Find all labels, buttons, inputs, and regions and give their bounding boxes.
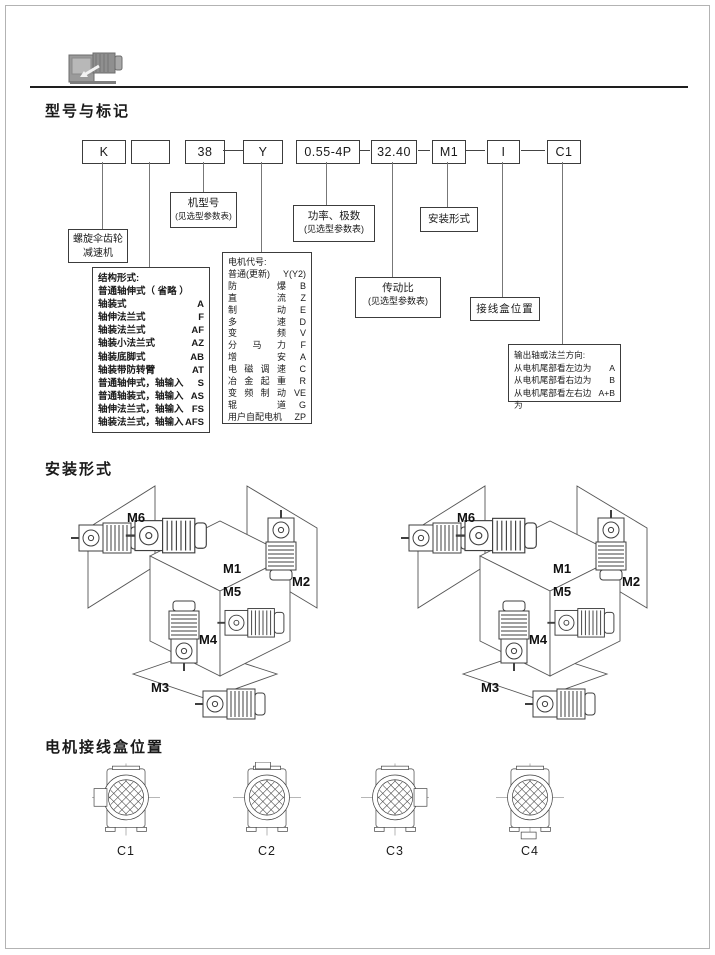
callout-ratio: 传动比 (见选型参数表) [355,277,441,318]
leader-line [392,162,393,277]
motor-code-row: 防爆B [228,281,306,293]
callout-motor-codes: 电机代号: 普通(更新)Y(Y2) 防爆B 直流Z 制动E 多速D 变频V 分马… [222,252,312,424]
motor-code-row: 普通(更新)Y(Y2) [228,269,306,281]
code-box-mounting: M1 [432,140,466,164]
motor-code-row: 增安A [228,352,306,364]
label-m6: M6 [457,510,475,525]
motor-code-row: 变频V [228,328,306,340]
structure-row: 普通轴装式，轴输入AS [98,390,204,403]
junction-box-top [255,762,270,769]
structure-row: 轴装带防转臂AT [98,364,204,377]
motor-m6 [401,523,471,553]
callout-power-poles: 功率、极数 (见选型参数表) [293,205,375,242]
structure-row: 轴伸法兰式F [98,311,204,324]
terminal-label-c1: C1 [92,844,160,858]
motor-m2 [596,510,626,580]
code-box-output-dir: C1 [547,140,581,164]
section-title-model-marking: 型号与标记 [45,100,130,121]
terminal-label-c4: C4 [496,844,564,858]
structure-row: 普通轴伸式，轴输入S [98,377,204,390]
terminal-label-c3: C3 [361,844,429,858]
code-box-power-poles: 0.55-4P [296,140,360,164]
leader-line [502,162,503,297]
leader-line [261,162,262,252]
junction-box-bottom [521,832,536,839]
leader-line [562,162,563,344]
leader-line [326,162,327,205]
structure-row: 轴伸法兰式，轴输入FS [98,403,204,416]
leader-line [447,162,448,207]
output-dir-row: 从电机尾部看右边为B [514,374,615,387]
junction-box-right [414,789,427,807]
code-box-ratio: 32.40 [371,140,417,164]
motor-front-view-c4 [496,762,564,841]
structure-row: 轴装式A [98,298,204,311]
motor-code-row: 分马力F [228,340,306,352]
label-m3: M3 [151,680,169,695]
motor-m4 [169,601,199,671]
label-m1: M1 [553,561,571,576]
terminal-view-c3: C3 [361,762,429,858]
dash [466,150,485,151]
catalog-page: 型号与标记 K 38 Y 0.55-4P 32.40 M1 I C1 螺旋伞齿轮… [0,0,715,955]
section-title-mounting: 安装形式 [45,458,113,479]
motor-m2 [266,510,296,580]
motor-code-row: 冶金起重R [228,376,306,388]
motor-m5 [217,609,284,638]
motor-front-view-c2 [233,762,301,841]
motor-code-row: 直流Z [228,293,306,305]
motor-code-row: 多速D [228,317,306,329]
code-box-motor-type: Y [243,140,283,164]
section-title-terminal-box: 电机接线盒位置 [45,736,164,757]
motor-m4 [499,601,529,671]
motor-m3 [195,689,265,719]
callout-frame-size: 机型号 (见选型参数表) [170,192,237,228]
dash [521,150,545,151]
code-box-series: K [82,140,126,164]
label-m1: M1 [223,561,241,576]
code-box-terminal: I [487,140,520,164]
callout-mounting: 安装形式 [420,207,478,232]
motor-m6 [71,523,141,553]
terminal-view-c4: C4 [496,762,564,858]
label-m3: M3 [481,680,499,695]
terminal-label-c2: C2 [233,844,301,858]
motor-front-view-c3 [361,762,429,841]
code-box-structure [131,140,170,164]
motor-code-row: 制动E [228,305,306,317]
label-m5: M5 [553,584,571,599]
callout-output-direction: 输出轴或法兰方向: 从电机尾部看左边为A 从电机尾部看右边为B 从电机尾部看左右… [508,344,621,402]
label-m4: M4 [199,632,218,647]
junction-box-left [94,789,107,807]
callout-structure-forms: 结构形式: 普通轴伸式（ 省略 ） 轴装式A 轴伸法兰式F 轴装法兰式AF 轴装… [92,267,210,433]
leader-line [102,162,103,230]
dash [418,150,430,151]
motor-m3 [525,689,595,719]
dash [360,150,370,151]
label-m6: M6 [127,510,145,525]
leader-line [203,162,204,193]
motor-m5 [547,609,614,638]
label-m2: M2 [292,574,310,589]
terminal-view-c1: C1 [92,762,160,858]
gearmotor-photo [66,46,128,86]
motor-front-view-c1 [92,762,160,841]
leader-line [149,162,150,267]
output-dir-row: 从电机尾部看左右边为A+B [514,387,615,412]
structure-row: 轴装小法兰式AZ [98,337,204,350]
motor-code-row: 电磁调速C [228,364,306,376]
structure-row: 轴装底脚式AB [98,351,204,364]
motor-code-row: 辊道G [228,400,306,412]
label-m4: M4 [529,632,548,647]
label-m2: M2 [622,574,640,589]
structure-row: 轴装法兰式，轴输入AFS [98,416,204,429]
output-dir-row: 从电机尾部看左边为A [514,362,615,375]
mounting-diagram-right: M6 M1 M2 M5 M4 M3 [385,478,700,733]
callout-reducer: 螺旋伞齿轮 减速机 [68,229,128,263]
callout-terminal-position: 接线盒位置 [470,297,540,321]
header-rule [30,86,688,88]
motor-code-row: 变频制动VE [228,388,306,400]
terminal-view-c2: C2 [233,762,301,858]
motor-code-row: 用户自配电机ZP [228,412,306,424]
structure-row: 轴装法兰式AF [98,324,204,337]
code-box-frame-size: 38 [185,140,225,164]
label-m5: M5 [223,584,241,599]
connector-line [223,150,243,151]
mounting-diagram-left: M6 M1 M2 M5 M4 M3 [55,478,370,733]
